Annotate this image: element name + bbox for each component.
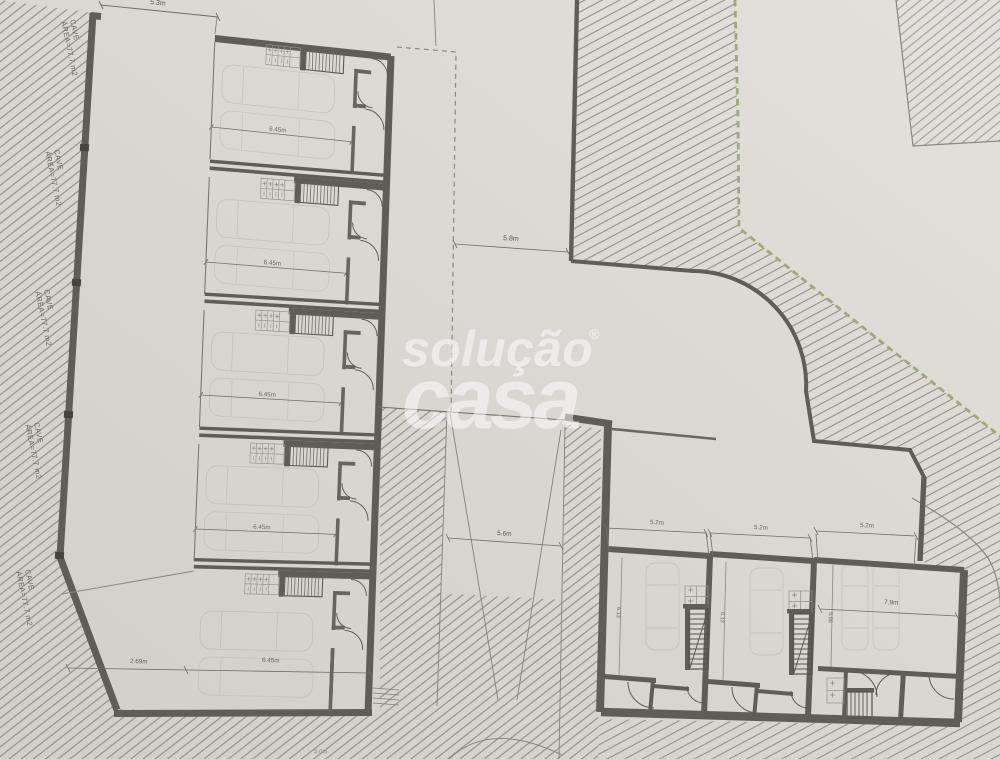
svg-text:6.13: 6.13 <box>615 607 621 618</box>
svg-text:7.9m: 7.9m <box>884 599 899 607</box>
svg-text:5.8m: 5.8m <box>503 235 519 243</box>
svg-text:6.13: 6.13 <box>719 612 725 623</box>
svg-text:5.2m: 5.2m <box>754 524 768 532</box>
svg-text:5.55: 5.55 <box>827 612 833 623</box>
svg-text:2.69m: 2.69m <box>130 658 148 666</box>
svg-text:5.2m: 5.2m <box>650 519 664 527</box>
svg-text:casa: casa <box>402 351 579 447</box>
svg-text:5.2m: 5.2m <box>860 522 874 530</box>
svg-text:5.6m: 5.6m <box>497 530 512 538</box>
svg-text:5.0m: 5.0m <box>314 749 328 756</box>
svg-text:®: ® <box>589 326 600 342</box>
